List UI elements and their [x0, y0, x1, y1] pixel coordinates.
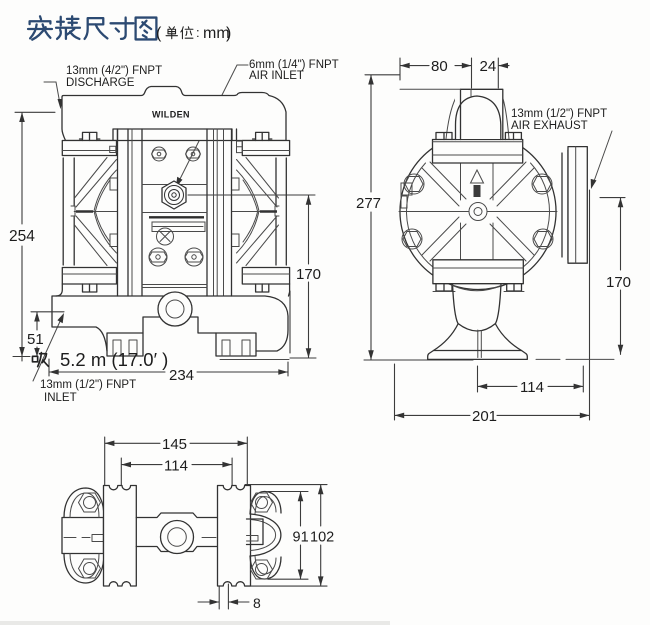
svg-text:277: 277: [356, 195, 381, 212]
svg-text:5.2 m (17.0′ ): 5.2 m (17.0′ ): [60, 349, 168, 370]
svg-text:13mm (1/2") FNPT: 13mm (1/2") FNPT: [511, 108, 607, 120]
svg-text:254: 254: [9, 228, 35, 245]
svg-text:AIR INLET: AIR INLET: [249, 70, 304, 82]
svg-text:DISCHARGE: DISCHARGE: [66, 77, 135, 89]
svg-text:91: 91: [293, 530, 309, 546]
svg-text:170: 170: [606, 274, 631, 291]
svg-text:102: 102: [310, 530, 334, 546]
svg-text:114: 114: [164, 458, 188, 475]
svg-text:201: 201: [472, 408, 497, 425]
svg-text:): ): [226, 25, 231, 42]
svg-text:24: 24: [480, 58, 497, 75]
svg-text:INLET: INLET: [44, 392, 77, 404]
svg-text:13mm (1/2") FNPT: 13mm (1/2") FNPT: [40, 379, 136, 391]
svg-text:WILDEN: WILDEN: [152, 110, 190, 120]
svg-text:51: 51: [27, 331, 44, 348]
svg-text:234: 234: [169, 367, 194, 384]
svg-text:145: 145: [162, 436, 187, 453]
svg-text:170: 170: [296, 266, 321, 283]
svg-text:80: 80: [431, 58, 448, 75]
svg-text:8: 8: [253, 595, 261, 611]
svg-text:114: 114: [520, 379, 544, 396]
svg-text::: :: [196, 25, 200, 40]
svg-text:13mm (4/2") FNPT: 13mm (4/2") FNPT: [66, 65, 162, 77]
svg-text:AIR EXHAUST: AIR EXHAUST: [511, 120, 588, 132]
svg-text:(: (: [156, 25, 162, 42]
